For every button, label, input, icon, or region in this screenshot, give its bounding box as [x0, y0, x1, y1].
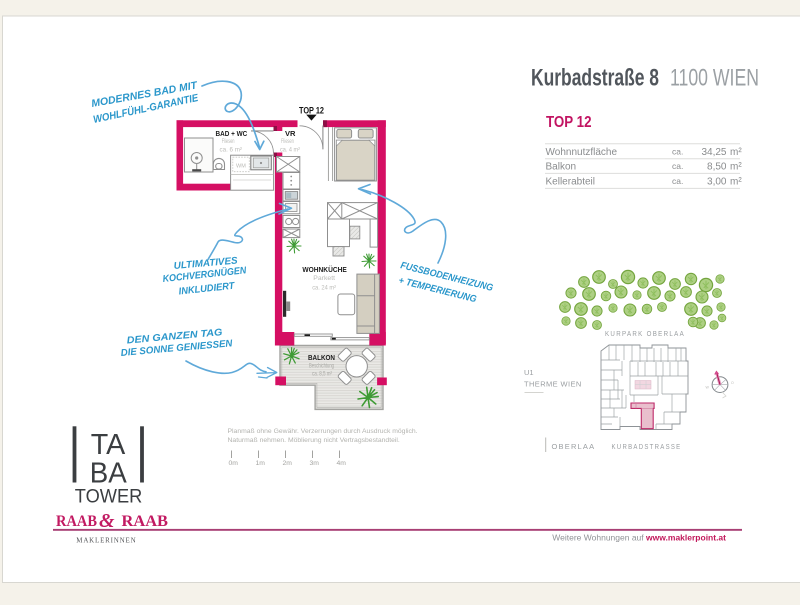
svg-text:Naturmaß nehmen. Möblierung ni: Naturmaß nehmen. Möblierung nicht Vertra…: [228, 437, 400, 444]
svg-text:m²: m²: [730, 147, 742, 158]
svg-text:m²: m²: [730, 176, 742, 187]
svg-text:Weitere Wohnungen auf www.makl: Weitere Wohnungen auf www.maklerpoint.at: [552, 532, 726, 542]
svg-text:TOP 12: TOP 12: [546, 114, 592, 131]
svg-text:U1: U1: [524, 368, 534, 377]
svg-text:ca. 6 m²: ca. 6 m²: [220, 147, 243, 154]
svg-text:VR: VR: [285, 131, 296, 138]
svg-text:1100 WIEN: 1100 WIEN: [670, 65, 759, 92]
svg-text:Kurbadstraße 8: Kurbadstraße 8: [531, 65, 659, 92]
svg-text:ca. 24 m²: ca. 24 m²: [312, 285, 337, 292]
svg-text:TA: TA: [91, 429, 126, 461]
svg-text:Fliesen: Fliesen: [222, 139, 235, 145]
svg-text:2m: 2m: [283, 460, 293, 467]
svg-text:34,25: 34,25: [701, 147, 726, 158]
svg-text:MAKLERINNEN: MAKLERINNEN: [76, 536, 136, 544]
svg-text:O: O: [731, 381, 734, 385]
svg-text:BAD + WC: BAD + WC: [216, 131, 248, 138]
svg-text:Beschichtung: Beschichtung: [309, 364, 334, 370]
svg-text:WM: WM: [236, 164, 246, 170]
svg-text:THERME WIEN: THERME WIEN: [524, 380, 582, 389]
svg-text:4m: 4m: [337, 460, 347, 467]
svg-text:ca.: ca.: [672, 176, 683, 186]
svg-text:ca. 8,5 m²: ca. 8,5 m²: [312, 372, 332, 378]
svg-text:WOHNKÜCHE: WOHNKÜCHE: [302, 265, 346, 274]
svg-text:m²: m²: [730, 162, 742, 173]
svg-text:Wohnnutzfläche: Wohnnutzfläche: [546, 147, 618, 158]
svg-text:ca.: ca.: [672, 147, 683, 157]
svg-text:RAAB: RAAB: [122, 513, 169, 530]
svg-text:Balkon: Balkon: [546, 162, 577, 173]
svg-text:KURPARK OBERLAA: KURPARK OBERLAA: [605, 329, 685, 338]
svg-text:TOWER: TOWER: [75, 485, 143, 507]
svg-text:1m: 1m: [256, 460, 266, 467]
svg-text:0m: 0m: [229, 460, 239, 467]
svg-text:Planmaß ohne Gewähr. Verzerrun: Planmaß ohne Gewähr. Verzerrungen durch …: [228, 428, 418, 435]
svg-text:&: &: [99, 510, 115, 532]
svg-text:OBERLAA: OBERLAA: [552, 442, 596, 451]
svg-text:ca.: ca.: [672, 161, 683, 171]
svg-text:ca. 4 m²: ca. 4 m²: [280, 147, 301, 154]
svg-text:BALKON: BALKON: [308, 355, 335, 362]
svg-text:3m: 3m: [310, 460, 320, 467]
svg-text:RAAB: RAAB: [56, 513, 97, 530]
svg-text:Kellerabteil: Kellerabteil: [546, 176, 595, 187]
svg-text:Fliesen: Fliesen: [281, 139, 294, 145]
svg-text:3,00: 3,00: [707, 176, 727, 187]
svg-text:KURBADSTRASSE: KURBADSTRASSE: [612, 442, 682, 451]
svg-text:Parkett: Parkett: [313, 275, 335, 282]
svg-text:8,50: 8,50: [707, 162, 727, 173]
